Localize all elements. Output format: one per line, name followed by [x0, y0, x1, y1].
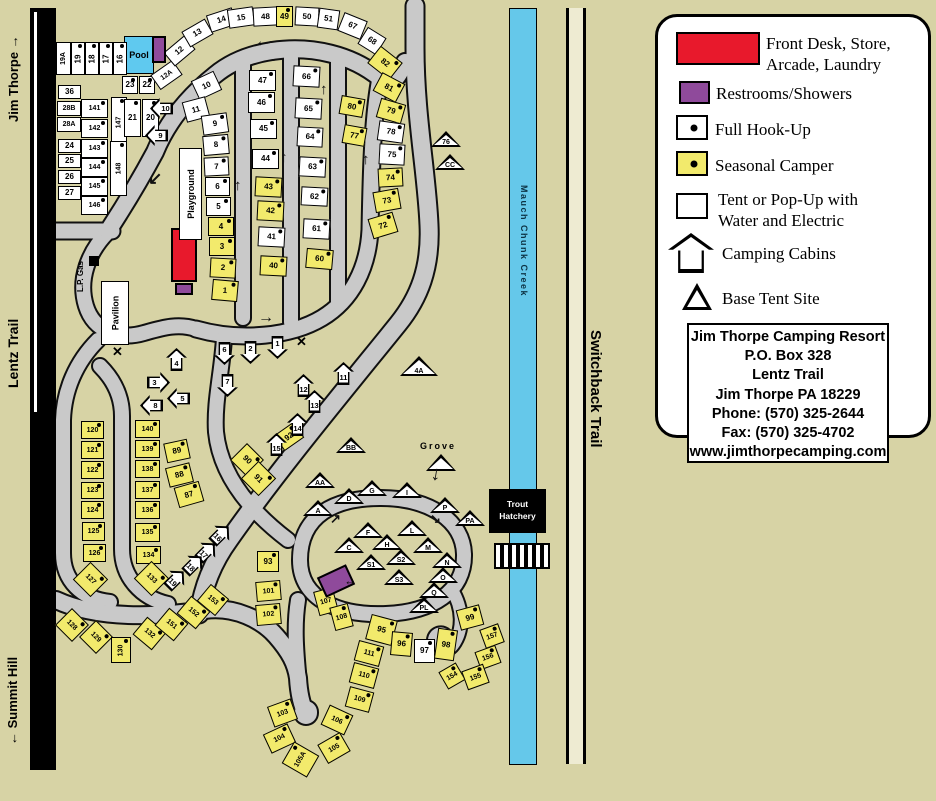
site-66: 66 — [292, 65, 320, 87]
site-126: 126 — [83, 544, 106, 562]
site-45: 45 — [250, 119, 277, 139]
jim-thorpe-direction-label: Jim Thorpe → — [6, 12, 23, 122]
cabin-6: 6 — [214, 342, 235, 365]
cabin-15: 15 — [266, 433, 287, 456]
site-48: 48 — [253, 6, 279, 26]
site-40: 40 — [259, 255, 287, 276]
tent-site-4A: 4A — [400, 356, 438, 376]
site-36: 36 — [58, 85, 81, 99]
cabin-4: 4 — [166, 348, 187, 371]
road-direction-arrow: ← — [255, 34, 271, 50]
site-142: 142 — [81, 119, 108, 138]
site-24: 24 — [58, 139, 81, 153]
legend-front-desk-swatch — [676, 32, 760, 65]
site-122: 122 — [81, 461, 104, 479]
creek-label: Mauch Chunk Creek — [518, 185, 529, 335]
cabin-9: 9 — [145, 125, 168, 146]
trout-hatchery-label-1: Trout — [489, 498, 546, 510]
fax: Fax: (570) 325-4702 — [689, 424, 887, 443]
tent-site-AA: AA — [305, 472, 335, 488]
site-134: 134 — [136, 546, 161, 564]
grove-label: Grove — [420, 441, 456, 451]
road-direction-arrow: ↙ — [148, 170, 162, 187]
site-17: 17 — [99, 42, 113, 75]
site-120: 120 — [81, 421, 104, 439]
site-61: 61 — [302, 218, 330, 239]
site-18: 18 — [85, 42, 99, 75]
restroom-front-desk — [175, 283, 193, 295]
site-28A: 28A — [57, 117, 81, 132]
road-direction-arrow: ← — [344, 574, 357, 587]
site-15: 15 — [227, 6, 255, 28]
lentz-trail-road — [30, 8, 56, 770]
site-60: 60 — [305, 248, 334, 270]
site-139: 139 — [135, 440, 160, 458]
campground-map: Jim Thorpe → Lentz Trail ← Summit Hill M… — [0, 0, 936, 801]
site-73: 73 — [372, 188, 401, 213]
cabin-10: 10 — [150, 98, 173, 119]
road-direction-arrow: ↑ — [320, 82, 328, 97]
site-65: 65 — [294, 97, 322, 119]
mauch-chunk-creek — [509, 8, 537, 765]
resort-name: Jim Thorpe Camping Resort — [689, 328, 887, 347]
site-3: 3 — [209, 237, 235, 256]
site-19: 19 — [71, 42, 85, 75]
road-direction-arrow: → — [258, 310, 274, 326]
po-box: P.O. Box 328 — [689, 347, 887, 366]
site-146: 146 — [81, 196, 108, 215]
lentz-trail-label: Lentz Trail — [5, 293, 22, 388]
site-78: 78 — [377, 120, 406, 143]
site-63: 63 — [298, 156, 326, 177]
site-50: 50 — [295, 6, 320, 26]
tent-site-A: A — [303, 500, 333, 516]
site-9: 9 — [201, 112, 230, 135]
site-145: 145 — [81, 177, 108, 196]
site-1: 1 — [211, 279, 239, 302]
fish-ladder — [494, 543, 550, 569]
site-7: 7 — [204, 156, 230, 176]
site-140: 140 — [135, 420, 160, 438]
pavilion-label: Pavilion — [110, 296, 120, 331]
legend-cabins-label: Camping Cabins — [722, 243, 836, 264]
legend-seasonal-swatch — [676, 151, 708, 176]
site-2: 2 — [209, 257, 236, 278]
tent-site-N: N — [432, 552, 462, 568]
site-4: 4 — [208, 217, 234, 236]
site-19A: 19A — [56, 42, 71, 75]
site-74: 74 — [378, 167, 404, 187]
tent-site-76: 76 — [431, 131, 461, 147]
tent-site-S3: S3 — [384, 569, 414, 585]
cabin-11: 11 — [333, 362, 354, 385]
contact-info-box: Jim Thorpe Camping Resort P.O. Box 328 L… — [687, 323, 889, 463]
legend-cabin-icon — [668, 233, 714, 273]
road-direction-arrow: ↑ — [362, 152, 370, 167]
tent-site-H: H — [372, 534, 402, 550]
pool-label: Pool — [129, 50, 149, 60]
switchback-trail — [566, 8, 586, 764]
phone: Phone: (570) 325-2644 — [689, 405, 887, 424]
site-5: 5 — [206, 197, 231, 216]
site-62: 62 — [301, 186, 329, 206]
tent-site-S2: S2 — [386, 549, 416, 565]
tent-site-BB: BB — [336, 437, 366, 453]
site-44: 44 — [252, 149, 279, 169]
tent-site-D: D — [334, 488, 364, 504]
tent-site-S1: S1 — [356, 554, 386, 570]
tent-site-Q: Q — [419, 582, 449, 598]
site-135: 135 — [135, 523, 160, 542]
road-direction-arrow: ↗ — [330, 512, 341, 525]
website: www.jimthorpecamping.com — [689, 443, 887, 462]
restroom-showers-north — [152, 36, 166, 63]
site-46: 46 — [248, 92, 275, 113]
legend-seasonal-label: Seasonal Camper — [715, 155, 834, 176]
site-138: 138 — [135, 460, 160, 478]
site-125: 125 — [82, 522, 105, 541]
city-state-zip: Jim Thorpe PA 18229 — [689, 386, 887, 405]
legend-restrooms-label: Restrooms/Showers — [716, 83, 852, 104]
site-28B: 28B — [57, 101, 81, 116]
cabin-14: 14 — [287, 413, 308, 436]
playground: Playground — [179, 148, 202, 240]
site-26: 26 — [58, 170, 81, 184]
site-43: 43 — [254, 176, 282, 197]
cabin-13: 13 — [304, 390, 325, 413]
site-47: 47 — [249, 70, 276, 91]
road-direction-arrow: ↑ — [280, 150, 288, 165]
tent-site-I: I — [392, 482, 422, 498]
cabin-5: 5 — [167, 388, 190, 409]
tent-site-C: C — [334, 537, 364, 553]
playground-label: Playground — [186, 169, 196, 219]
site-124: 124 — [81, 501, 104, 519]
legend-full-hookup-label: Full Hook-Up — [715, 119, 811, 140]
legend-base-tent-label: Base Tent Site — [722, 288, 820, 309]
site-98: 98 — [434, 628, 458, 661]
legend-tent-popup-swatch — [676, 193, 708, 219]
legend-base-tent-icon — [682, 283, 712, 310]
cabin-7: 7 — [217, 374, 238, 397]
site-51: 51 — [317, 8, 341, 31]
tent-site-PA: PA — [455, 510, 485, 526]
tent-site-M: M — [413, 537, 443, 553]
site-143: 143 — [81, 139, 108, 158]
site-80: 80 — [339, 95, 366, 118]
trout-hatchery-label-2: Hatchery — [489, 510, 546, 522]
site-123: 123 — [81, 482, 104, 499]
pool: Pool — [124, 36, 154, 74]
switchback-trail-label: Switchback Trail — [587, 330, 604, 460]
site-102: 102 — [255, 603, 282, 626]
site-96: 96 — [390, 631, 413, 657]
site-97: 97 — [414, 639, 435, 663]
road-direction-arrow: ↑ — [234, 178, 242, 193]
site-49: 49 — [276, 6, 293, 27]
x-mark: ✕ — [112, 344, 123, 360]
cabin-2: 2 — [240, 341, 261, 364]
site-64: 64 — [296, 126, 323, 147]
site-101: 101 — [255, 580, 282, 602]
site-21: 21 — [124, 99, 141, 137]
tent-site-O: O — [428, 567, 458, 583]
summit-hill-direction-label: ← Summit Hill — [5, 595, 22, 745]
cabin-1: 1 — [267, 336, 288, 359]
site-77: 77 — [342, 124, 368, 147]
legend-full-hookup-swatch — [676, 115, 708, 140]
site-144: 144 — [81, 158, 108, 177]
site-141: 141 — [81, 99, 108, 118]
site-137: 137 — [135, 481, 160, 499]
site-130: 130 — [111, 637, 131, 663]
site-6: 6 — [205, 177, 230, 196]
legend-tent-popup-label: Tent or Pop-Up withWater and Electric — [718, 189, 858, 231]
site-16: 16 — [113, 42, 127, 75]
legend-restrooms-swatch — [679, 81, 710, 104]
site-136: 136 — [135, 501, 160, 519]
site-41: 41 — [257, 226, 285, 247]
legend-front-desk-label: Front Desk, Store,Arcade, Laundry — [766, 33, 891, 75]
site-148: 148 — [110, 141, 127, 196]
site-93: 93 — [257, 551, 279, 572]
road-direction-arrow: ↘ — [430, 512, 441, 525]
site-25: 25 — [58, 154, 81, 168]
cabin-8: 8 — [140, 395, 163, 416]
tent-site-PL: PL — [409, 597, 439, 613]
road-stripe — [34, 12, 37, 412]
tent-site-CC: CC — [435, 154, 465, 170]
street: Lentz Trail — [689, 366, 887, 385]
site-8: 8 — [202, 134, 230, 156]
site-23: 23 — [122, 76, 138, 94]
site-42: 42 — [256, 200, 284, 221]
site-27: 27 — [58, 186, 81, 200]
trout-hatchery: Trout Hatchery — [489, 489, 546, 533]
lp-gas-label: L.P. Gas — [76, 244, 88, 292]
site-75: 75 — [378, 143, 405, 165]
x-mark: ✕ — [296, 334, 307, 350]
site-121: 121 — [81, 441, 104, 459]
lp-gas-tank — [89, 256, 99, 266]
pavilion: Pavilion — [101, 281, 129, 345]
